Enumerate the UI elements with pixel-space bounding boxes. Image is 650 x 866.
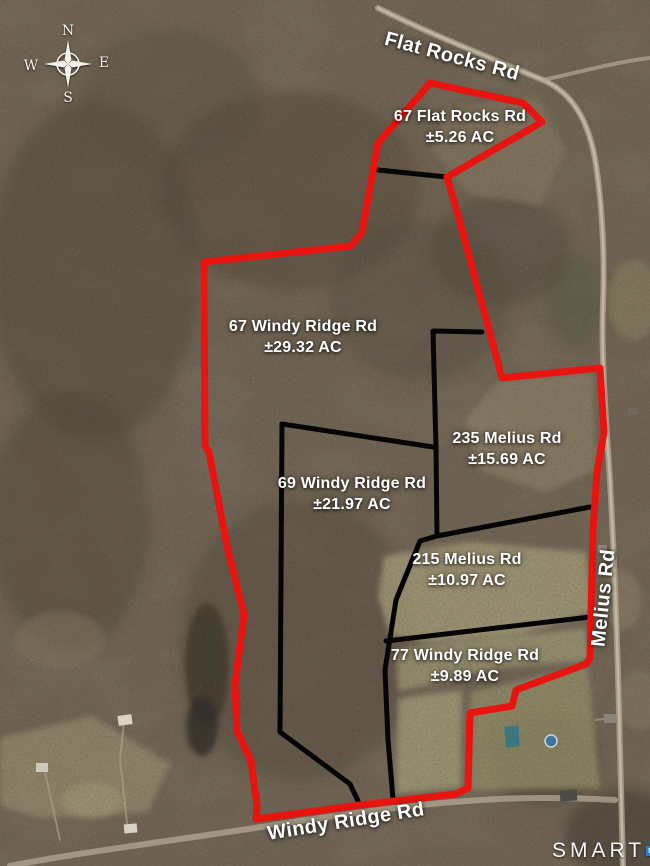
parcel-acreage: ±21.97 AC (313, 496, 391, 513)
round-pool (545, 735, 557, 747)
compass-east-label: E (99, 55, 109, 71)
mls-box-m: M (646, 846, 650, 856)
parcel-acreage: ±10.97 AC (428, 572, 506, 589)
parcel-address: 77 Windy Ridge Rd (391, 647, 539, 664)
parcel-address: 67 Flat Rocks Rd (394, 108, 526, 125)
parcel-label-215-melius: 215 Melius Rd ±10.97 AC (412, 550, 521, 592)
parcel-label-69-windy-ridge: 69 Windy Ridge Rd ±21.97 AC (278, 474, 426, 516)
aerial-parcel-map: N E S W Flat Rocks Rd Melius Rd Windy Ri… (0, 0, 650, 866)
parcel-acreage: ±9.89 AC (431, 668, 499, 685)
compass-south-label: S (63, 90, 73, 106)
parcel-address: 67 Windy Ridge Rd (229, 318, 377, 335)
compass-west-label: W (24, 58, 38, 74)
parcel-acreage: ±15.69 AC (468, 451, 546, 468)
smartmls-wordmark: SMART (552, 840, 645, 861)
parcel-label-67-windy-ridge: 67 Windy Ridge Rd ±29.32 AC (229, 317, 377, 359)
parcel-address: 215 Melius Rd (412, 551, 521, 568)
compass-rose: N E S W (22, 14, 122, 114)
parcel-address: 235 Melius Rd (452, 430, 561, 447)
mls-boxes-icon: M L S (646, 840, 650, 862)
parcel-label-67-flat-rocks: 67 Flat Rocks Rd ±5.26 AC (394, 107, 526, 149)
smartmls-logo: SMART M L S (552, 840, 650, 862)
compass-north-label: N (62, 23, 74, 39)
parcel-acreage: ±29.32 AC (264, 339, 342, 356)
parcel-label-77-windy-ridge: 77 Windy Ridge Rd ±9.89 AC (391, 646, 539, 688)
parcel-acreage: ±5.26 AC (426, 129, 494, 146)
parcel-address: 69 Windy Ridge Rd (278, 475, 426, 492)
parcel-label-235-melius: 235 Melius Rd ±15.69 AC (452, 429, 561, 471)
swimming-pool (504, 726, 519, 748)
